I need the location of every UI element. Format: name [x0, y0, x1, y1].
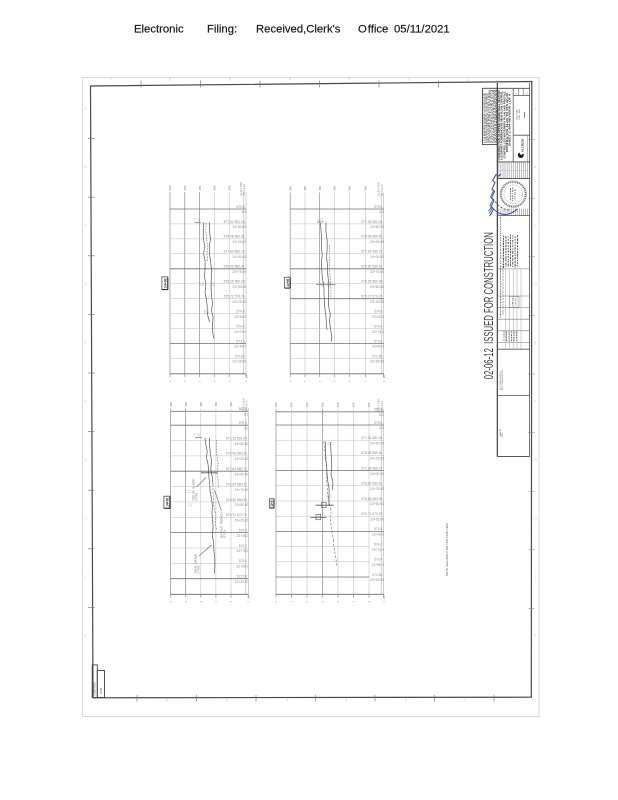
svg-text:574.2: 574.2 [374, 324, 382, 328]
svg-text:B: B [84, 165, 86, 169]
svg-text:2: 2 [405, 699, 407, 703]
svg-text:450: 450 [321, 402, 325, 407]
svg-text:450: 450 [274, 402, 278, 407]
svg-text:14+00: 14+00 [270, 500, 274, 506]
svg-text:577.64 580.72: 577.64 580.72 [224, 250, 245, 254]
svg-text:Office: Office [358, 24, 388, 36]
svg-text:E4: E4 [382, 374, 386, 378]
svg-text:23+75.00: 23+75.00 [370, 270, 384, 274]
svg-text:ALLTECH: ALLTECH [520, 139, 524, 152]
svg-text:1-04: 1-04 [327, 498, 333, 500]
svg-text:574.2: 574.2 [374, 542, 382, 546]
svg-text:574.9: 574.9 [374, 309, 382, 313]
svg-text:DMS: DMS [502, 432, 504, 437]
svg-text:577.32 581.04: 577.32 581.04 [361, 220, 382, 224]
svg-text:C-604 REV1: C-604 REV1 [94, 681, 97, 695]
svg-text:578.08 580.91: 578.08 580.91 [361, 451, 382, 455]
svg-text:574.2: 574.2 [236, 324, 244, 328]
svg-text:577.32 581.04: 577.32 581.04 [361, 436, 382, 440]
svg-text:576.90 580.41: 576.90 580.41 [361, 482, 382, 486]
svg-text:24+50.00: 24+50.00 [370, 225, 384, 229]
svg-text:450: 450 [229, 402, 233, 407]
svg-text:450: 450 [336, 402, 340, 407]
svg-text:574.9: 574.9 [236, 309, 244, 313]
svg-text:450: 450 [364, 186, 368, 191]
svg-text:24+25.00: 24+25.00 [232, 240, 246, 244]
svg-text:CHK. JMB: CHK. JMB [519, 109, 521, 120]
svg-text:22+25.00: 22+25.00 [370, 360, 384, 364]
svg-text:Filing:: Filing: [207, 24, 237, 36]
svg-text:575.71 579.70: 575.71 579.70 [224, 295, 245, 299]
svg-text:24+25.00: 24+25.00 [370, 457, 384, 461]
svg-text:450: 450 [213, 185, 217, 190]
svg-text:450: 450 [214, 402, 218, 407]
svg-text:24+50.00: 24+50.00 [235, 442, 249, 446]
svg-text:578.08 580.91: 578.08 580.91 [224, 235, 245, 239]
svg-text:450: 450 [169, 402, 173, 407]
svg-text:E: E [534, 341, 536, 345]
svg-text:STA 0+0: STA 0+0 [242, 184, 246, 196]
svg-text:(TYP): (TYP) [197, 566, 201, 574]
svg-text:450: 450 [198, 185, 202, 190]
svg-text:24+00.00: 24+00.00 [370, 472, 384, 476]
svg-text:578.08 580.91: 578.08 580.91 [226, 452, 247, 456]
svg-text:02-06-12 ISSUED FOR CONSTRUCT: 02-06-12 ISSUED FOR CONSTRUCTION [481, 232, 496, 379]
svg-text:F: F [85, 399, 87, 403]
svg-text:576.90 580.41: 576.90 580.41 [226, 482, 247, 486]
svg-text:579.6: 579.6 [374, 421, 382, 425]
svg-text:DES. RAH: DES. RAH [515, 109, 518, 120]
svg-text:23+50.00: 23+50.00 [370, 285, 384, 289]
svg-text:579.6: 579.6 [236, 205, 244, 209]
svg-text:4.0: 4.0 [244, 426, 249, 430]
svg-text:E: E [84, 341, 86, 345]
svg-text:574.2: 574.2 [239, 544, 247, 548]
svg-text:1: 1 [464, 699, 466, 703]
svg-text:450: 450 [227, 185, 231, 190]
svg-text:B: B [534, 165, 536, 169]
svg-text:SHEET C-604 REVISION 1 OF 6: SHEET C-604 REVISION 1 OF 6 [508, 94, 512, 146]
svg-text:1-04: 1-04 [204, 312, 210, 315]
svg-text:4: 4 [286, 699, 288, 703]
svg-text:579.6: 579.6 [374, 205, 382, 209]
svg-text:23+25.00: 23+25.00 [370, 517, 384, 521]
svg-text:22+75.0: 22+75.0 [236, 549, 248, 553]
svg-text:577.64 580.72: 577.64 580.72 [226, 467, 247, 471]
svg-text:576.26 580.09: 576.26 580.09 [361, 280, 382, 284]
svg-text:1-04: 1-04 [187, 492, 192, 494]
svg-text:1: 1 [467, 78, 469, 82]
svg-text:6: 6 [169, 78, 171, 82]
svg-text:E4: E4 [244, 374, 248, 378]
svg-text:4.0: 4.0 [379, 210, 384, 214]
svg-text:14+00: 14+00 [166, 498, 170, 507]
svg-text:22+50.0: 22+50.0 [372, 345, 384, 349]
svg-text:577.64 580.72: 577.64 580.72 [361, 250, 382, 254]
svg-text:577.64 580.72: 577.64 580.72 [361, 466, 382, 470]
svg-text:574.9: 574.9 [239, 528, 247, 532]
svg-text:577.32 581.04: 577.32 581.04 [226, 436, 247, 440]
svg-text:450: 450 [352, 402, 356, 407]
svg-text:05/11/2021: 05/11/2021 [394, 24, 450, 36]
svg-text:22+75.0: 22+75.0 [234, 330, 246, 334]
svg-text:23+50.00: 23+50.00 [370, 502, 384, 506]
svg-text:(TYP): (TYP) [223, 530, 227, 538]
svg-text:1-04: 1-04 [319, 283, 324, 287]
svg-text:E4: E4 [247, 595, 251, 599]
svg-text:2: 2 [408, 78, 410, 82]
svg-text:450: 450 [367, 402, 371, 407]
svg-text:STA 0+0: STA 0+0 [380, 184, 384, 196]
svg-text:576.26 580.09: 576.26 580.09 [226, 498, 247, 502]
svg-text:450: 450 [183, 185, 187, 190]
svg-text:1-04: 1-04 [205, 298, 211, 300]
svg-text:573.4: 573.4 [374, 558, 382, 562]
svg-text:NOTE: SEE DWG C-601 FOR PLAN V: NOTE: SEE DWG C-601 FOR PLAN VIEW [445, 523, 449, 576]
svg-text:573.4: 573.4 [236, 339, 244, 343]
svg-text:5.1: 5.1 [244, 413, 249, 417]
svg-text:4.0: 4.0 [379, 426, 384, 430]
svg-text:23+75.00: 23+75.00 [235, 488, 249, 492]
svg-text:7: 7 [107, 699, 109, 703]
svg-text:575.71 579.70: 575.71 579.70 [361, 512, 382, 516]
svg-text:450: 450 [168, 185, 172, 190]
svg-text:24+00.00: 24+00.00 [370, 255, 384, 259]
svg-text:22+25.00: 22+25.00 [232, 360, 246, 364]
svg-text:02/06: 02/06 [100, 687, 103, 694]
svg-text:572.60: 572.60 [237, 575, 247, 579]
svg-text:23+25.00: 23+25.00 [232, 300, 246, 304]
svg-text:574.9: 574.9 [374, 527, 382, 531]
svg-text:STA 0+0: STA 0+0 [380, 401, 384, 413]
svg-text:23+00.0: 23+00.0 [372, 315, 384, 319]
svg-text:6: 6 [166, 699, 168, 703]
svg-text:23+75.00: 23+75.00 [370, 487, 384, 491]
svg-text:24+00.00: 24+00.00 [232, 255, 246, 259]
svg-text:23+25.00: 23+25.00 [370, 300, 384, 304]
svg-text:22+50.0: 22+50.0 [372, 563, 384, 567]
svg-text:Received,Clerk's: Received,Clerk's [256, 24, 341, 36]
svg-text:450: 450 [333, 186, 337, 191]
svg-text:Electronic: Electronic [134, 24, 184, 36]
svg-text:575.71 579.70: 575.71 579.70 [361, 295, 382, 299]
svg-text:3: 3 [345, 699, 347, 703]
svg-text:1-04: 1-04 [327, 283, 331, 287]
svg-text:576.90 580.41: 576.90 580.41 [361, 265, 382, 269]
svg-text:FILE: C604-PROF.DWG: FILE: C604-PROF.DWG [502, 369, 504, 390]
svg-text:572.60: 572.60 [235, 354, 245, 358]
svg-text:578.08 580.91: 578.08 580.91 [361, 235, 382, 239]
svg-text:22+50.0: 22+50.0 [234, 345, 246, 349]
svg-text:22+50.0: 22+50.0 [236, 565, 248, 569]
svg-text:3: 3 [348, 78, 350, 82]
svg-text:573.4: 573.4 [374, 339, 382, 343]
svg-text:572.60: 572.60 [372, 573, 382, 577]
svg-text:1-04: 1-04 [211, 285, 215, 287]
svg-text:23+25.00: 23+25.00 [235, 519, 249, 523]
svg-text:7: 7 [110, 78, 112, 82]
svg-text:23+00.0: 23+00.0 [236, 534, 248, 538]
svg-text:576.26 580.09: 576.26 580.09 [224, 280, 245, 284]
svg-text:450: 450 [184, 402, 188, 407]
svg-text:579.6: 579.6 [239, 421, 247, 425]
svg-text:450: 450 [288, 186, 292, 191]
svg-text:23+50.00: 23+50.00 [232, 285, 246, 289]
svg-text:24+25.00: 24+25.00 [370, 240, 384, 244]
svg-text:450: 450 [348, 186, 352, 191]
svg-text:572.60: 572.60 [372, 354, 382, 358]
svg-text:1-04: 1-04 [327, 444, 333, 446]
svg-text:4.0: 4.0 [242, 210, 247, 214]
svg-text:450: 450 [305, 402, 309, 407]
svg-text:24+00.00: 24+00.00 [235, 472, 249, 476]
svg-text:577.32 581.04: 577.32 581.04 [224, 220, 245, 224]
svg-text:22+25.00: 22+25.00 [235, 580, 249, 584]
svg-text:24+25.00: 24+25.00 [235, 457, 249, 461]
svg-text:1-04: 1-04 [199, 284, 204, 287]
svg-text:24+50.00: 24+50.00 [370, 441, 384, 445]
svg-text:22+75.0: 22+75.0 [372, 548, 384, 552]
svg-text:22+75.0: 22+75.0 [372, 330, 384, 334]
svg-text:(TYP): (TYP) [195, 493, 199, 501]
svg-text:450: 450 [290, 402, 294, 407]
svg-text:450: 450 [303, 186, 307, 191]
svg-text:5: 5 [226, 699, 228, 703]
svg-text:5.1: 5.1 [379, 413, 384, 417]
svg-text:573.4: 573.4 [239, 559, 247, 563]
svg-text:22+25.00: 22+25.00 [370, 578, 384, 582]
svg-text:576.90 580.41: 576.90 580.41 [224, 265, 245, 269]
svg-text:23+50.00: 23+50.00 [235, 503, 249, 507]
svg-text:450: 450 [199, 402, 203, 407]
svg-text:4: 4 [289, 78, 291, 82]
svg-text:23+75.00: 23+75.00 [232, 270, 246, 274]
svg-text:14+00: 14+00 [286, 279, 290, 287]
svg-text:24+50.00: 24+50.00 [232, 225, 246, 229]
svg-text:STA 0+0: STA 0+0 [245, 400, 249, 412]
svg-text:E4: E4 [382, 595, 386, 599]
svg-text:5: 5 [229, 78, 231, 82]
svg-text:F: F [535, 399, 537, 403]
svg-text:450: 450 [318, 186, 322, 191]
svg-text:14+00: 14+00 [164, 278, 168, 288]
svg-text:23+00.0: 23+00.0 [234, 315, 246, 319]
svg-text:575.71 579.70: 575.71 579.70 [226, 513, 247, 517]
svg-text:576.26 580.09: 576.26 580.09 [361, 497, 382, 501]
svg-text:23+00.0: 23+00.0 [372, 533, 384, 537]
